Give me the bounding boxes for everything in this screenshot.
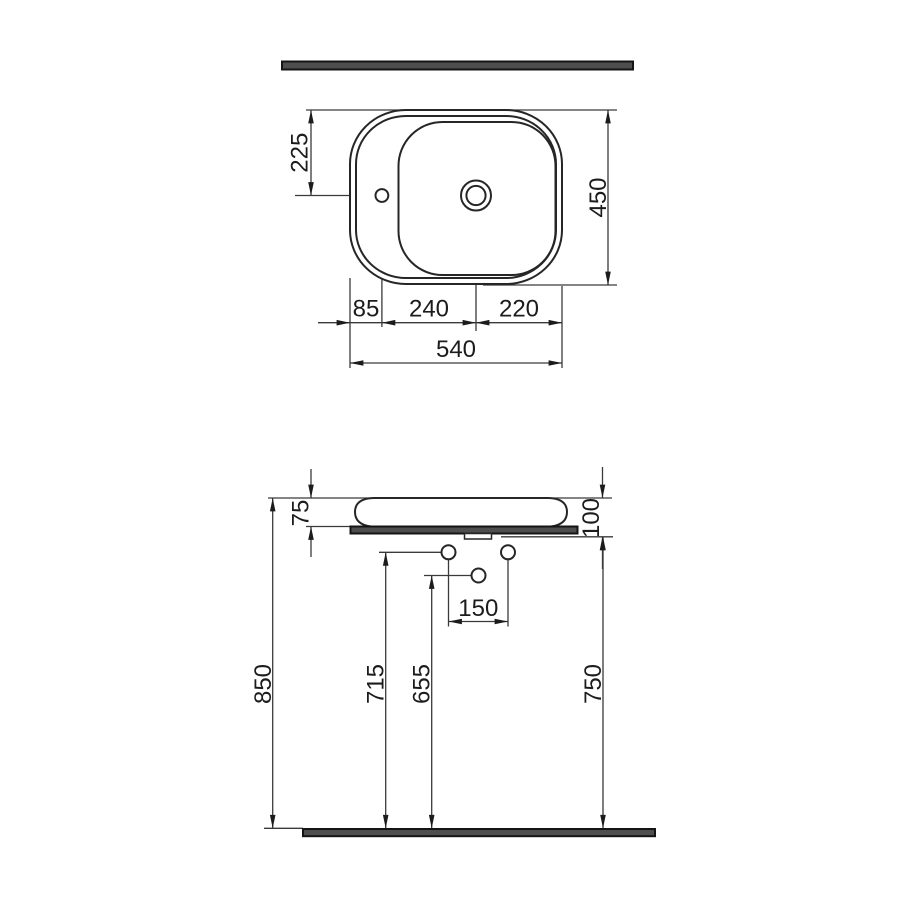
countertop-slab bbox=[351, 527, 578, 534]
dim-85-label: 85 bbox=[353, 296, 380, 323]
dim-width-total: 540 bbox=[350, 336, 562, 363]
drain-flange bbox=[465, 534, 492, 540]
dim-150-label: 150 bbox=[458, 595, 498, 622]
dim-supply-height: 715 bbox=[363, 552, 390, 828]
dim-220-label: 220 bbox=[499, 296, 539, 323]
dim-underside-height: 750 bbox=[580, 537, 607, 829]
dim-100-label: 100 bbox=[578, 498, 605, 538]
drain-inner-ring bbox=[466, 186, 485, 205]
drawing-canvas: 225 450 85 240 220 540 bbox=[0, 0, 900, 900]
dim-rim-height: 850 bbox=[250, 498, 277, 828]
dim-540-label: 540 bbox=[436, 336, 476, 363]
dim-outlet-spacing: 150 bbox=[449, 595, 509, 622]
dim-row-horizontal: 85 240 220 bbox=[318, 296, 562, 323]
dim-rim-to-underside: 100 bbox=[578, 467, 605, 569]
dim-75-label: 75 bbox=[288, 500, 315, 527]
dim-655-label: 655 bbox=[409, 664, 436, 704]
tap-hole bbox=[376, 189, 389, 202]
dim-tap-offset-depth: 225 bbox=[287, 110, 314, 196]
basin-profile bbox=[355, 498, 567, 527]
dim-outlet-height: 655 bbox=[409, 576, 436, 829]
dim-depth-total: 450 bbox=[585, 110, 612, 285]
plan-view: 225 450 85 240 220 540 bbox=[282, 62, 633, 369]
elevation-view: 75 100 150 850 715 655 750 bbox=[250, 467, 655, 836]
floor-slab bbox=[303, 829, 655, 836]
washbasin-technical-drawing: 225 450 85 240 220 540 bbox=[0, 0, 900, 900]
dim-basin-height: 75 bbox=[288, 469, 315, 557]
dim-225-label: 225 bbox=[287, 133, 314, 173]
connection-hole-left bbox=[442, 545, 456, 559]
wall-slab bbox=[282, 62, 633, 70]
connection-hole-right bbox=[501, 545, 515, 559]
dim-850-label: 850 bbox=[250, 664, 277, 704]
dim-240-label: 240 bbox=[409, 296, 449, 323]
dim-715-label: 715 bbox=[363, 664, 390, 704]
connection-hole-center bbox=[472, 569, 486, 583]
dim-750-label: 750 bbox=[580, 664, 607, 704]
dim-450-label: 450 bbox=[585, 177, 612, 217]
